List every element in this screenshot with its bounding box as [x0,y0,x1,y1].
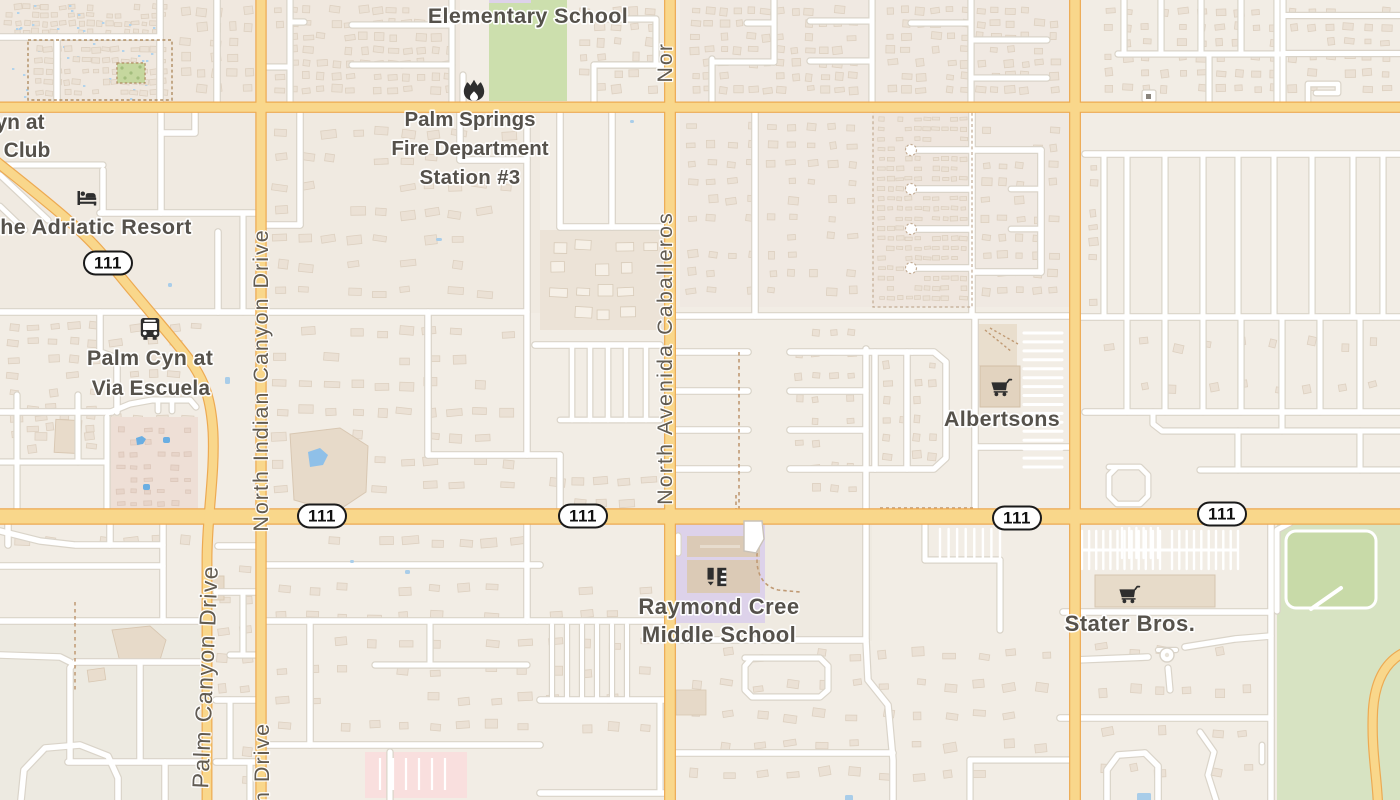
svg-text:n Drive: n Drive [250,722,274,800]
svg-text:111: 111 [1208,505,1236,524]
svg-text:Station #3: Station #3 [420,166,521,189]
svg-text:Middle School: Middle School [642,622,796,647]
svg-text:Raymond Cree: Raymond Cree [638,594,799,619]
svg-text:Club: Club [4,139,51,162]
svg-text:Nor: Nor [653,42,677,83]
svg-text:North Indian Canyon Drive: North Indian Canyon Drive [249,228,273,531]
svg-text:111: 111 [569,507,597,526]
svg-text:he Adriatic Resort: he Adriatic Resort [0,215,192,239]
svg-text:111: 111 [308,507,336,526]
svg-text:Stater Bros.: Stater Bros. [1065,611,1196,636]
svg-text:Elementary School: Elementary School [428,4,628,28]
svg-text:North Avenida Caballeros: North Avenida Caballeros [653,211,677,505]
svg-text:Via Escuela: Via Escuela [92,377,211,400]
svg-text:Palm Cyn at: Palm Cyn at [87,346,213,370]
svg-text:111: 111 [94,254,122,273]
svg-text:yn at: yn at [0,111,45,134]
svg-text:Fire Department: Fire Department [391,137,548,160]
svg-text:Palm Springs: Palm Springs [404,108,535,131]
svg-text:Albertsons: Albertsons [944,407,1060,431]
svg-text:111: 111 [1003,509,1031,528]
